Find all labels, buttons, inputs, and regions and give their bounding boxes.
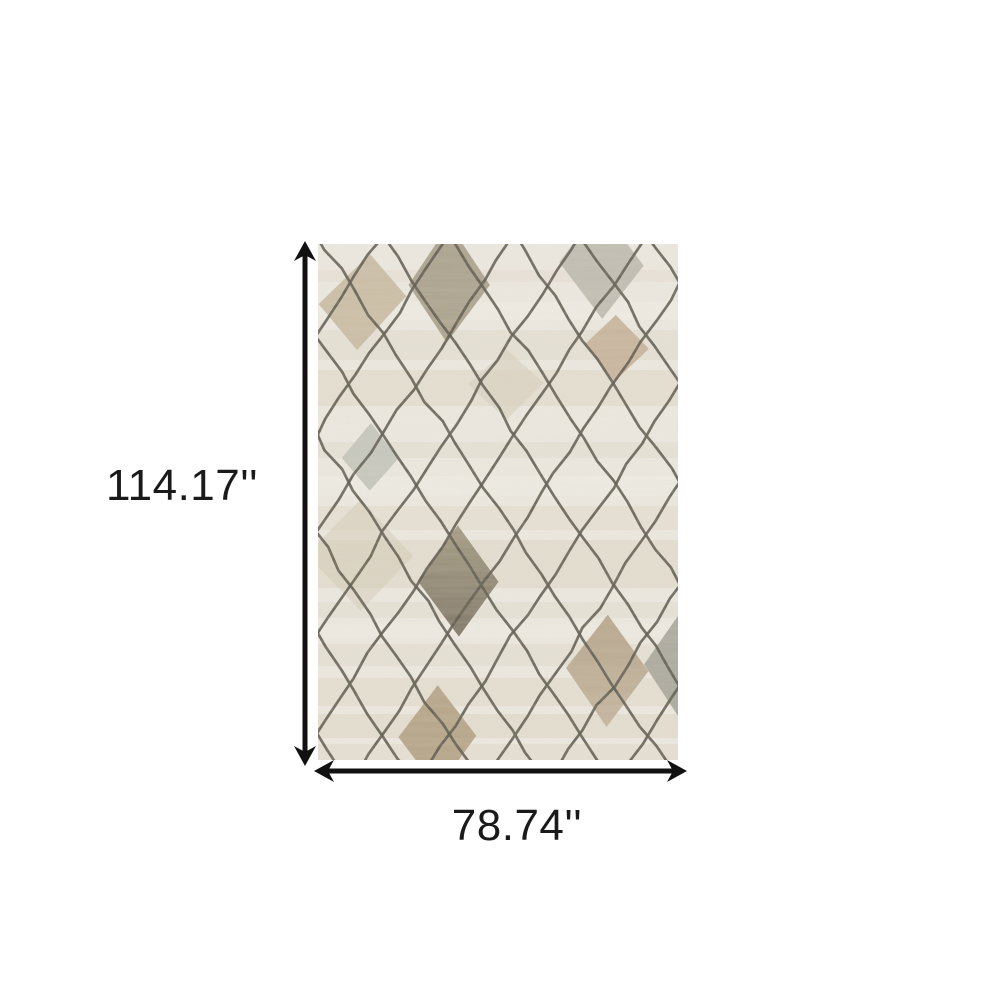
height-dimension-arrow <box>294 241 316 766</box>
arrow-right-icon <box>667 760 687 782</box>
rug-image <box>318 244 678 760</box>
arrow-down-icon <box>294 746 316 766</box>
width-dimension-label: 78.74'' <box>452 804 582 848</box>
product-dimension-diagram: 114.17'' 78.74'' <box>0 0 1000 1000</box>
width-dimension-arrow <box>314 760 687 782</box>
height-dimension-label: 114.17'' <box>106 464 258 508</box>
arrow-left-icon <box>314 760 334 782</box>
arrow-up-icon <box>294 241 316 261</box>
